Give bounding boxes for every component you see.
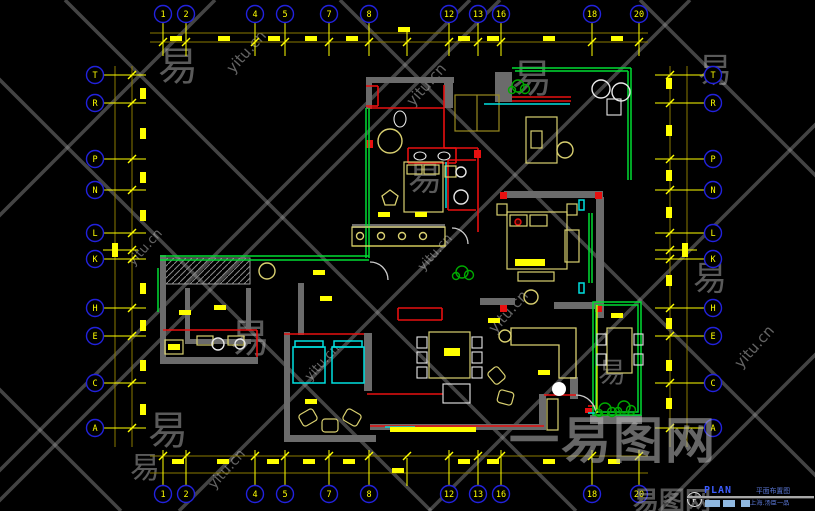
grid-label-left-T: T (92, 71, 97, 81)
cabinet-fill (515, 259, 545, 266)
watermark-yitu-text: yitu.cn (223, 27, 270, 77)
grid-label-bottom-12: 12 (444, 490, 454, 500)
cad-canvas[interactable]: yitu.cnyitu.cnyitu.cnyitu.cnyitu.cnyitu.… (0, 0, 815, 511)
grid-label-bottom-18: 18 (587, 490, 597, 500)
grid-label-right-E: E (710, 332, 715, 342)
dim-text-block (666, 398, 672, 409)
dim-text-block (346, 36, 358, 41)
grid-label-top-18: 18 (587, 10, 597, 20)
grid-label-bottom-7: 7 (326, 490, 331, 500)
dim-text-block (458, 459, 470, 464)
grid-label-left-E: E (92, 332, 97, 342)
titleblock-subtitle-cn: 上海.汤臣一品 (750, 499, 800, 508)
dim-text-block (140, 172, 146, 183)
dim-text-block (140, 210, 146, 221)
grid-label-right-N: N (710, 186, 715, 196)
armchair-outline (487, 366, 507, 386)
side-table (552, 382, 566, 396)
grid-label-left-C: C (92, 379, 97, 389)
grid-label-left-H: H (92, 304, 97, 314)
titleblock-color-swatch (741, 500, 750, 507)
grid-label-bottom-5: 5 (282, 490, 287, 500)
red-wall-block (474, 150, 481, 158)
grid-label-top-13: 13 (473, 10, 483, 20)
grid-label-bottom-16: 16 (496, 490, 506, 500)
dim-text-block (140, 320, 146, 331)
wall-segment (185, 288, 190, 344)
watermark-yitu-text: yitu.cn (731, 322, 778, 372)
kitchen-counter-hatch (165, 258, 250, 284)
sink-basin (394, 111, 406, 127)
dim-text-block (682, 243, 688, 257)
dim-text-block (666, 318, 672, 329)
fixture-circle (259, 263, 275, 279)
dim-text-block (666, 275, 672, 286)
grid-label-top-2: 2 (183, 10, 188, 20)
floorplan (158, 68, 643, 442)
dim-text-block (313, 270, 325, 275)
dim-text-block (140, 360, 146, 371)
titleblock-title-cn: 平面布置图 (756, 486, 805, 495)
grid-label-top-16: 16 (496, 10, 506, 20)
dim-text-block (378, 212, 390, 217)
dim-text-block (611, 313, 623, 318)
dim-text-block (343, 459, 355, 464)
wall-segment (504, 191, 603, 198)
sofa-cushion (579, 200, 584, 210)
grid-label-top-5: 5 (282, 10, 287, 20)
sofa-cushion (295, 341, 323, 347)
grid-label-top-4: 4 (252, 10, 257, 20)
sink-basin (438, 152, 450, 160)
lamp-symbol (515, 219, 521, 225)
dim-text-block (218, 36, 230, 41)
wall-segment (284, 332, 290, 442)
furniture-outline (530, 215, 547, 226)
chair-outline (472, 352, 482, 363)
dim-text-block (487, 459, 499, 464)
dim-text-block (666, 125, 672, 136)
dim-text-block (179, 310, 191, 315)
cabinet-fill (444, 348, 460, 356)
dim-text-block (666, 170, 672, 181)
chair-outline (472, 367, 482, 378)
furniture-outline (497, 204, 507, 215)
armchair-outline (298, 408, 318, 427)
dim-text-block (140, 404, 146, 415)
furniture-outline (518, 272, 554, 281)
dim-text-block (666, 360, 672, 371)
wall-segment (444, 77, 453, 108)
grid-label-right-R: R (710, 99, 716, 109)
furniture-outline (567, 204, 577, 215)
titleblock-plan-label: PLAN (704, 485, 732, 496)
dim-text-block (267, 459, 279, 464)
grid-label-bottom-4: 4 (252, 490, 257, 500)
dim-text-block (140, 128, 146, 139)
grid-label-left-A: A (92, 424, 97, 434)
red-wall-block (595, 192, 602, 199)
dim-text-block (398, 27, 410, 32)
grid-label-right-C: C (710, 379, 715, 389)
fixture-circle (456, 167, 466, 177)
dim-text-block (305, 36, 317, 41)
titleblock-symbol-circle: P (687, 492, 702, 507)
plant-symbol (465, 271, 474, 280)
dim-text-block (140, 283, 146, 294)
furniture-path (370, 262, 388, 280)
wall-segment (366, 77, 372, 109)
dim-text-block (611, 36, 623, 41)
wall-segment (298, 283, 304, 335)
grid-label-right-T: T (710, 71, 715, 81)
dim-text-block (488, 318, 500, 323)
cabinet-fill (168, 344, 180, 350)
furniture-path (382, 190, 398, 205)
red-wall-block (500, 192, 507, 199)
dim-text-block (170, 36, 182, 41)
grid-label-bottom-13: 13 (473, 490, 483, 500)
fixture-circle (399, 233, 406, 240)
grid-label-left-N: N (92, 186, 97, 196)
furniture-outline (531, 131, 542, 148)
watermark-yi-char: 易 (148, 408, 188, 454)
dim-text-block (392, 468, 404, 473)
watermark-yitu-text: yitu.cn (415, 231, 456, 274)
chair-outline (472, 337, 482, 348)
chair-outline (417, 367, 427, 378)
wall-segment (554, 302, 601, 309)
dim-text-block (543, 36, 555, 41)
wall-segment (480, 298, 515, 305)
wall-segment (246, 288, 251, 330)
dim-text-block (214, 305, 226, 310)
fixture-circle (454, 190, 468, 204)
dim-text-block (305, 399, 317, 404)
dim-text-block (217, 459, 229, 464)
grid-label-top-1: 1 (160, 10, 165, 20)
dim-text-block (415, 212, 427, 217)
chair-outline (417, 337, 427, 348)
armchair-outline (322, 419, 338, 432)
fixture-circle (378, 233, 385, 240)
grid-label-top-8: 8 (366, 10, 371, 20)
fixture-circle (357, 233, 364, 240)
grid-label-top-20: 20 (634, 10, 644, 20)
dim-text-block (303, 459, 315, 464)
grid-label-left-R: R (92, 99, 98, 109)
watermark-big: 一易图网易图网 (509, 412, 717, 511)
titleblock-color-swatch (723, 500, 735, 507)
grid-label-left-P: P (92, 155, 97, 165)
wall-segment (284, 435, 376, 442)
dim-text-block (666, 78, 672, 89)
fixture-circle (378, 129, 402, 153)
watermark-yi-char: 易 (512, 56, 552, 102)
dim-text-block (320, 296, 332, 301)
fixture-circle (557, 142, 573, 158)
watermark-yitu-text: yitu.cn (205, 446, 249, 492)
grid-label-right-K: K (710, 255, 716, 265)
dim-text-block (458, 36, 470, 41)
grid-label-right-L: L (710, 229, 715, 239)
dim-text-block (268, 36, 280, 41)
dim-text-block (140, 88, 146, 99)
fixture-circle (420, 233, 427, 240)
cabinet-fill (390, 427, 476, 432)
titleblock-color-swatch (705, 500, 720, 507)
grid-label-bottom-1: 1 (160, 490, 165, 500)
wall-segment (160, 357, 258, 364)
fixture-circle (499, 330, 511, 342)
sofa-cushion (579, 283, 584, 293)
red-wall-block (500, 305, 507, 312)
grid-label-bottom-2: 2 (183, 490, 188, 500)
grid-label-right-P: P (710, 155, 715, 165)
watermark-yitu-big: 一易图网 (509, 412, 717, 470)
grid-label-right-H: H (710, 304, 715, 314)
dim-text-block (112, 243, 118, 257)
cad-viewport[interactable]: yitu.cnyitu.cnyitu.cnyitu.cnyitu.cnyitu.… (0, 0, 815, 511)
wall-segment (364, 333, 372, 391)
armchair-outline (497, 389, 515, 405)
wall-segment (366, 77, 454, 83)
grid-label-bottom-8: 8 (366, 490, 371, 500)
wall-segment (596, 197, 604, 318)
grid-label-top-7: 7 (326, 10, 331, 20)
watermark-yi-char: 易 (158, 44, 198, 90)
dim-text-block (172, 459, 184, 464)
dim-text-block (538, 370, 550, 375)
grid-label-left-L: L (92, 229, 97, 239)
grid-label-left-K: K (92, 255, 98, 265)
grid-label-top-12: 12 (444, 10, 454, 20)
dim-text-block (487, 36, 499, 41)
dim-text-block (666, 207, 672, 218)
